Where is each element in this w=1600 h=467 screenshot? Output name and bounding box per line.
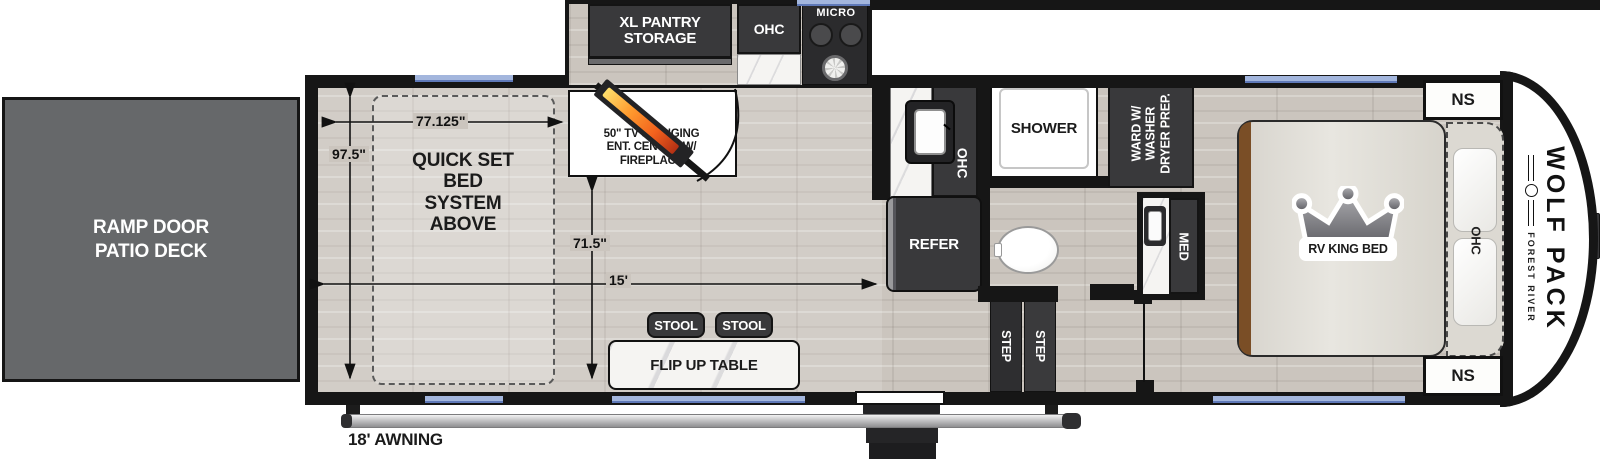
window <box>1213 396 1405 403</box>
fireplace-icon <box>593 79 694 168</box>
entry-door <box>855 391 945 405</box>
window <box>415 75 513 82</box>
dim-depth-label: 97.5" <box>329 146 369 162</box>
window <box>425 396 503 403</box>
dim-width-label: 77.125" <box>413 113 468 129</box>
dim-interior-label: 71.5" <box>570 235 610 251</box>
dim-length-label: 15' <box>606 272 631 288</box>
window <box>1245 76 1397 83</box>
rv-floorplan: RAMP DOOR PATIO DECK QUICK SET BED SYSTE… <box>0 0 1600 467</box>
window <box>612 396 805 403</box>
tv-swing-arc <box>697 89 738 181</box>
